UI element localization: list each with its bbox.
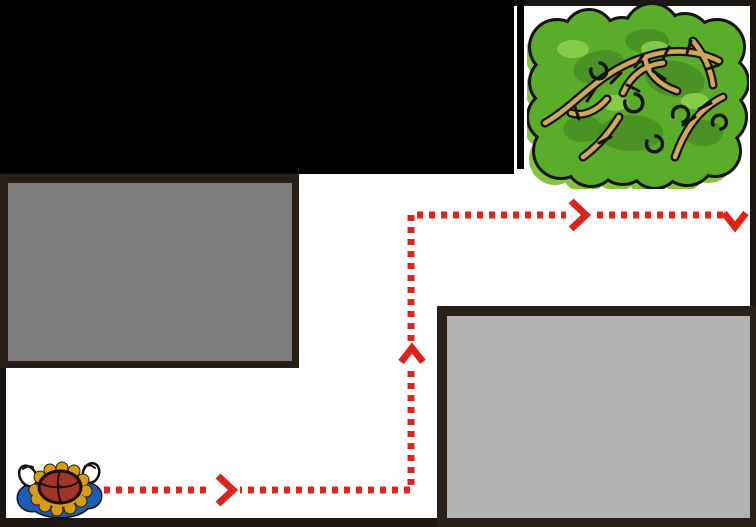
obstacle-gray-left bbox=[0, 174, 299, 368]
path-arrow-right-1 bbox=[218, 476, 233, 504]
path-arrow-up bbox=[401, 348, 423, 362]
path-halo bbox=[566, 208, 592, 222]
character-head bbox=[39, 471, 81, 503]
player-character[interactable] bbox=[12, 456, 108, 518]
bush-goal[interactable] bbox=[527, 5, 749, 189]
bush-pen-left-wall bbox=[517, 0, 524, 169]
black-wall-block bbox=[0, 0, 514, 174]
obstacle-gray-left-fill bbox=[8, 183, 292, 361]
path-arrow-right-2 bbox=[571, 201, 586, 229]
obstacle-gray-right-fill bbox=[447, 316, 750, 518]
maze-scene bbox=[0, 0, 756, 527]
path-halo bbox=[210, 483, 240, 497]
obstacle-gray-right bbox=[437, 306, 756, 527]
path-arrow-down-end bbox=[724, 213, 746, 227]
path-halo bbox=[403, 343, 420, 367]
